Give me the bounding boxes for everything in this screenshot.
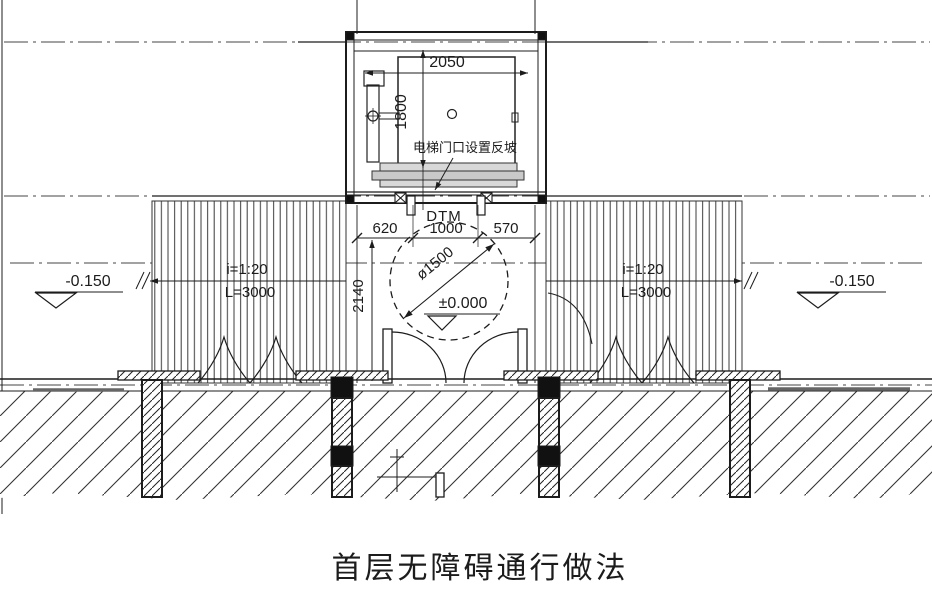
- level-triangle-center: [428, 316, 456, 330]
- floor-plan-drawing: 2050 1800 电梯门口设置反坡 DTM 620 1000 570 2140…: [0, 0, 932, 594]
- circle-diameter-label: ø1500: [413, 244, 457, 284]
- shaft-corner: [346, 32, 354, 40]
- shaft-corner: [538, 32, 546, 40]
- level-mark-left: -0.150: [35, 273, 123, 308]
- slope-right-length: L=3000: [621, 284, 671, 301]
- slope-left-length: L=3000: [225, 284, 275, 301]
- dim-2140: 2140: [350, 240, 372, 381]
- dim-1800-label: 1800: [393, 94, 410, 130]
- cad-canvas: 2050 1800 电梯门口设置反坡 DTM 620 1000 570 2140…: [0, 0, 932, 594]
- dim-620-label: 620: [372, 220, 397, 237]
- level-triangle-left: [36, 293, 76, 308]
- level-left-label: -0.150: [65, 273, 110, 290]
- drawing-title: 首层无障碍通行做法: [332, 552, 629, 585]
- level-center-label: ±0.000: [439, 295, 488, 312]
- anchor-box-left: [395, 193, 406, 203]
- dim-2050-label: 2050: [429, 54, 465, 71]
- shaft-corner: [346, 195, 354, 203]
- shaft-corner: [538, 195, 546, 203]
- dim-1000-label: 1000: [429, 220, 462, 237]
- door-note-label: 电梯门口设置反坡: [413, 140, 517, 155]
- level-triangle-right: [798, 293, 838, 308]
- dim-570-label: 570: [493, 220, 518, 237]
- ground-hatch: [0, 391, 932, 501]
- door-leaf-arc-left: [392, 332, 446, 383]
- cab-ceiling-fixture: [448, 110, 457, 119]
- dim-2140-label: 2140: [350, 279, 367, 312]
- level-mark-right: -0.150: [797, 273, 886, 308]
- slope-right-ratio: i=1:20: [622, 261, 663, 278]
- level-right-label: -0.150: [829, 273, 874, 290]
- door-stop-left: [407, 196, 415, 215]
- slope-left-ratio: i=1:20: [226, 261, 267, 278]
